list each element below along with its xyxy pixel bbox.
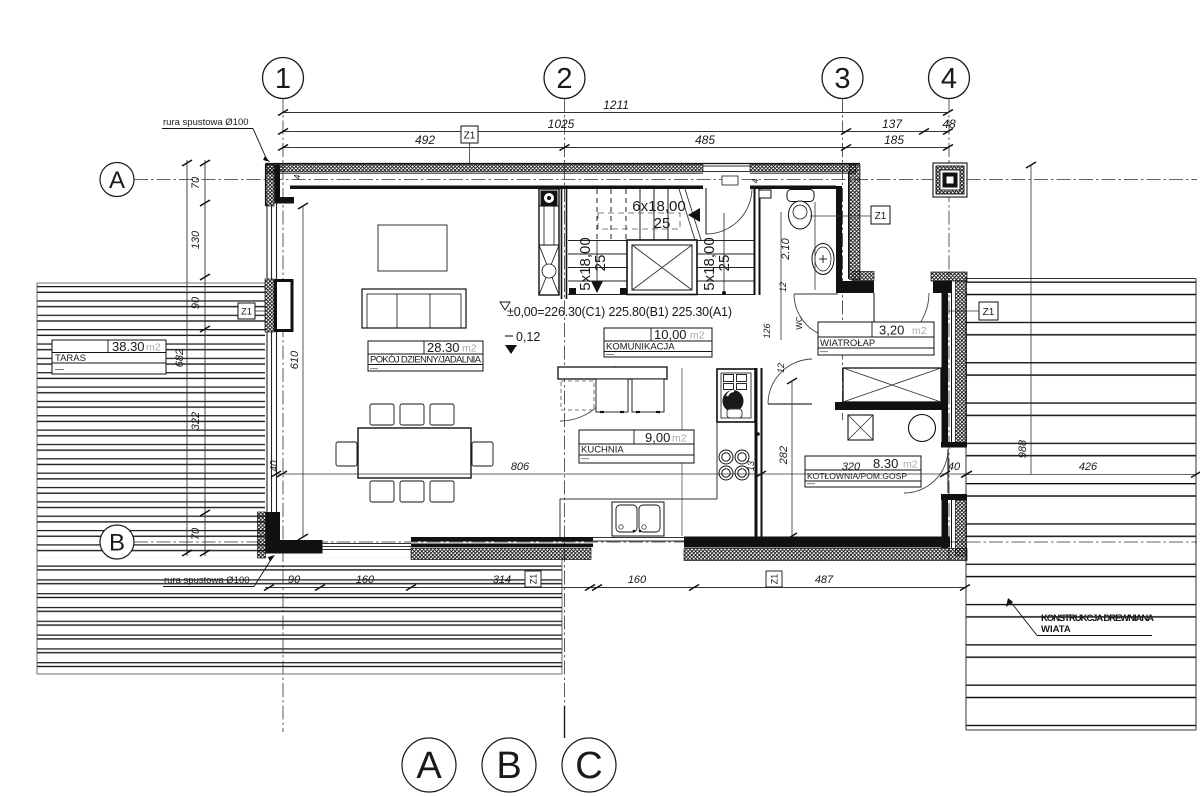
svg-text:—: — bbox=[370, 364, 378, 373]
svg-text:—: — bbox=[820, 347, 828, 356]
svg-text:70: 70 bbox=[190, 176, 202, 189]
svg-text:492: 492 bbox=[415, 133, 435, 147]
svg-text:Z1: Z1 bbox=[464, 131, 476, 142]
svg-text:4: 4 bbox=[750, 178, 760, 183]
svg-text:A: A bbox=[416, 745, 442, 787]
svg-text:POKÓJ DZIENNY/JADALNIA: POKÓJ DZIENNY/JADALNIA bbox=[370, 355, 482, 366]
svg-text:WIATROŁAP: WIATROŁAP bbox=[820, 338, 875, 349]
svg-text:Z1: Z1 bbox=[529, 574, 539, 585]
svg-text:28.30: 28.30 bbox=[427, 340, 460, 355]
svg-text:KOMUNIKACJA: KOMUNIKACJA bbox=[606, 342, 675, 353]
svg-text:70: 70 bbox=[190, 527, 202, 540]
svg-text:4: 4 bbox=[292, 174, 302, 179]
svg-text:48: 48 bbox=[942, 117, 956, 131]
svg-text:160: 160 bbox=[628, 574, 647, 586]
svg-text:2: 2 bbox=[556, 63, 572, 95]
svg-text:314: 314 bbox=[493, 574, 511, 586]
svg-text:806: 806 bbox=[511, 461, 530, 473]
svg-text:Z1: Z1 bbox=[241, 307, 252, 318]
svg-text:m2: m2 bbox=[672, 433, 687, 445]
svg-text:38.30: 38.30 bbox=[112, 339, 145, 354]
svg-text:—: — bbox=[55, 364, 64, 374]
svg-text:185: 185 bbox=[884, 133, 904, 147]
svg-text:426: 426 bbox=[1079, 461, 1098, 473]
svg-text:m2: m2 bbox=[903, 459, 918, 471]
svg-text:90: 90 bbox=[190, 296, 202, 309]
svg-text:4: 4 bbox=[941, 63, 957, 95]
svg-text:A: A bbox=[109, 167, 125, 194]
svg-text:1: 1 bbox=[275, 63, 291, 95]
svg-text:12: 12 bbox=[776, 363, 786, 373]
svg-text:m2: m2 bbox=[146, 342, 161, 354]
svg-text:137: 137 bbox=[882, 117, 903, 131]
svg-text:m2: m2 bbox=[912, 325, 927, 337]
svg-text:Z1: Z1 bbox=[875, 211, 887, 222]
svg-text:WC: WC bbox=[795, 316, 804, 330]
svg-text:13: 13 bbox=[746, 461, 756, 471]
svg-text:322: 322 bbox=[190, 412, 202, 430]
svg-text:B: B bbox=[496, 745, 521, 787]
svg-text:320: 320 bbox=[842, 461, 861, 473]
svg-text:0,12: 0,12 bbox=[516, 330, 540, 344]
svg-text:282: 282 bbox=[778, 446, 790, 465]
svg-text:Z1: Z1 bbox=[983, 307, 995, 318]
svg-text:1025: 1025 bbox=[548, 117, 575, 131]
svg-text:Z1: Z1 bbox=[770, 574, 780, 585]
svg-text:12: 12 bbox=[778, 282, 788, 292]
svg-text:25: 25 bbox=[592, 255, 609, 272]
svg-text:160: 160 bbox=[356, 574, 375, 586]
svg-text:6x18,00: 6x18,00 bbox=[632, 198, 685, 215]
svg-text:—: — bbox=[807, 479, 815, 488]
svg-text:rura spustowa Ø100: rura spustowa Ø100 bbox=[164, 575, 250, 586]
svg-text:485: 485 bbox=[695, 133, 715, 147]
svg-text:±0,00=226.30(C1) 225.80(B1): ±0,00=226.30(C1) 225.80(B1) 225.30(A1) bbox=[507, 305, 732, 319]
svg-text:8.30: 8.30 bbox=[873, 456, 898, 471]
svg-text:25: 25 bbox=[654, 215, 671, 232]
svg-text:C: C bbox=[575, 745, 602, 787]
svg-text:m2: m2 bbox=[462, 343, 477, 355]
svg-text:m2: m2 bbox=[690, 330, 705, 342]
svg-text:2.10: 2.10 bbox=[780, 237, 792, 260]
svg-text:988: 988 bbox=[1017, 439, 1029, 458]
svg-text:rura spustowa Ø100: rura spustowa Ø100 bbox=[163, 117, 249, 128]
svg-text:KONSTRUKCJA DREWNIANA: KONSTRUKCJA DREWNIANA bbox=[1041, 613, 1154, 624]
svg-text:3,20: 3,20 bbox=[879, 323, 904, 338]
svg-text:WIATA: WIATA bbox=[1041, 624, 1071, 635]
svg-text:TARAS: TARAS bbox=[55, 353, 86, 364]
svg-text:25: 25 bbox=[716, 255, 733, 272]
svg-text:90: 90 bbox=[288, 574, 301, 586]
svg-text:10,00: 10,00 bbox=[654, 327, 687, 342]
svg-text:1211: 1211 bbox=[603, 98, 629, 112]
svg-text:682: 682 bbox=[174, 349, 186, 367]
svg-text:3: 3 bbox=[834, 63, 850, 95]
svg-text:130: 130 bbox=[190, 230, 202, 249]
svg-text:40: 40 bbox=[269, 460, 280, 472]
svg-text:40: 40 bbox=[948, 461, 961, 473]
svg-text:—: — bbox=[581, 454, 589, 463]
svg-text:9,00: 9,00 bbox=[645, 430, 670, 445]
svg-text:—: — bbox=[606, 350, 614, 359]
svg-text:126: 126 bbox=[762, 323, 772, 338]
svg-text:610: 610 bbox=[289, 350, 301, 369]
svg-text:B: B bbox=[109, 530, 125, 557]
svg-text:487: 487 bbox=[815, 574, 834, 586]
